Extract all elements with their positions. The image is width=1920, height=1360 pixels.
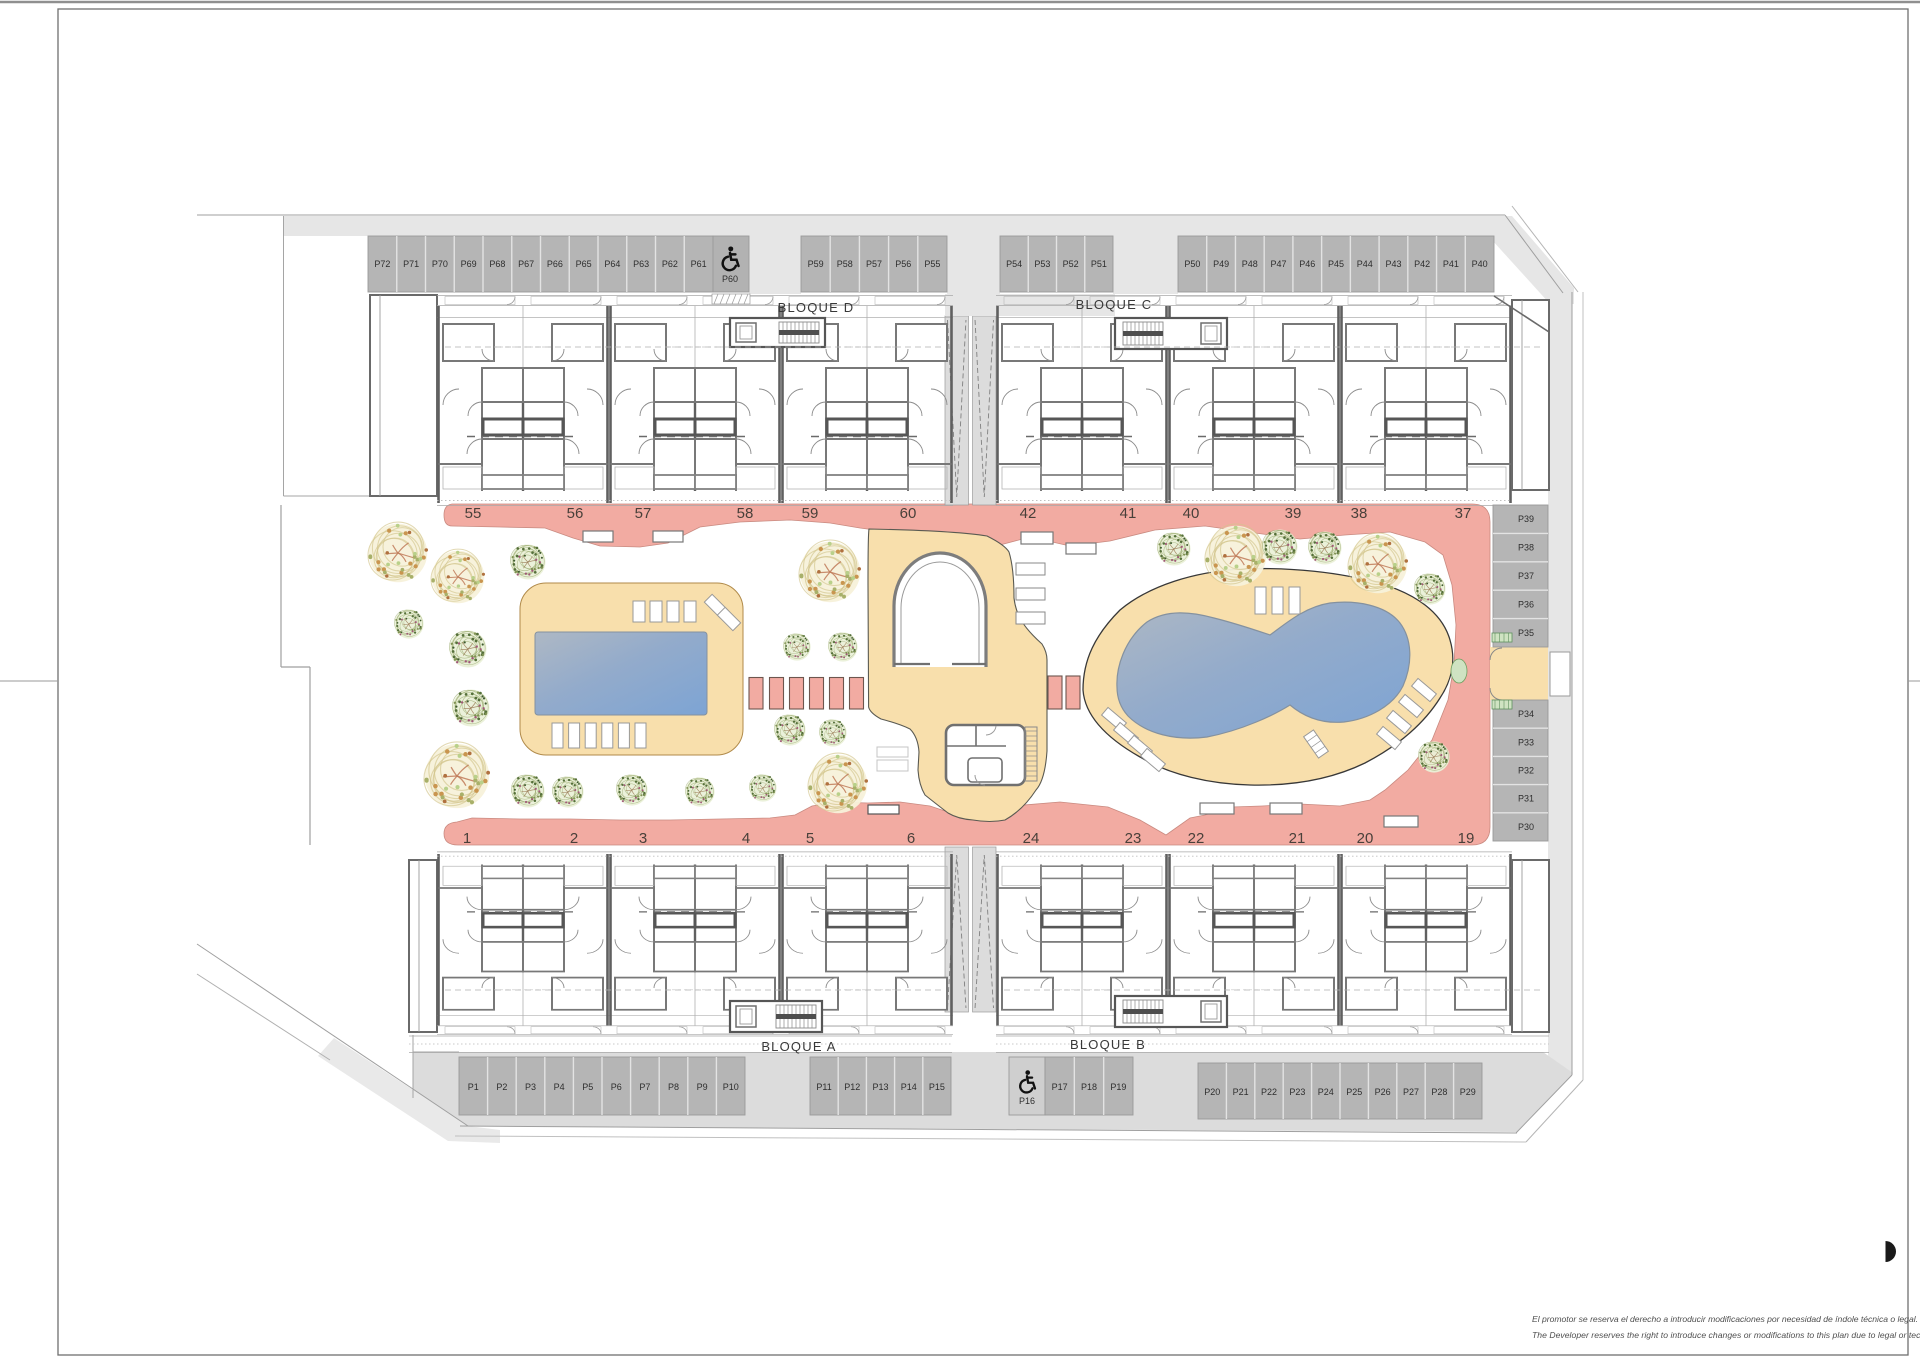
svg-text:P67: P67 <box>518 259 534 269</box>
svg-text:P3: P3 <box>525 1082 536 1092</box>
svg-text:P17: P17 <box>1052 1082 1068 1092</box>
svg-text:BLOQUE C: BLOQUE C <box>1076 297 1153 312</box>
svg-text:P27: P27 <box>1403 1087 1419 1097</box>
svg-text:P38: P38 <box>1518 543 1534 553</box>
svg-text:24: 24 <box>1023 830 1040 847</box>
svg-text:El promotor se reserva el dere: El promotor se reserva el derecho a intr… <box>1532 1314 1918 1324</box>
svg-text:P13: P13 <box>872 1082 888 1092</box>
svg-text:55: 55 <box>465 505 482 522</box>
svg-text:P50: P50 <box>1184 259 1200 269</box>
svg-text:P21: P21 <box>1233 1087 1249 1097</box>
svg-text:P49: P49 <box>1213 259 1229 269</box>
svg-text:P34: P34 <box>1518 709 1534 719</box>
svg-text:P70: P70 <box>432 259 448 269</box>
svg-text:P16: P16 <box>1019 1096 1035 1106</box>
svg-text:21: 21 <box>1289 830 1306 847</box>
svg-text:P31: P31 <box>1518 794 1534 804</box>
svg-text:38: 38 <box>1351 505 1368 522</box>
svg-text:P65: P65 <box>576 259 592 269</box>
svg-text:58: 58 <box>737 505 754 522</box>
svg-text:P63: P63 <box>633 259 649 269</box>
svg-text:P60: P60 <box>722 274 738 284</box>
svg-text:P35: P35 <box>1518 628 1534 638</box>
svg-text:P48: P48 <box>1242 259 1258 269</box>
svg-text:BLOQUE D: BLOQUE D <box>778 300 855 315</box>
svg-text:P28: P28 <box>1431 1087 1447 1097</box>
svg-text:P2: P2 <box>496 1082 507 1092</box>
svg-text:P58: P58 <box>837 259 853 269</box>
svg-text:42: 42 <box>1020 505 1037 522</box>
svg-text:P44: P44 <box>1357 259 1373 269</box>
svg-text:2: 2 <box>570 830 578 847</box>
svg-text:60: 60 <box>900 505 917 522</box>
svg-text:P6: P6 <box>611 1082 622 1092</box>
svg-text:P22: P22 <box>1261 1087 1277 1097</box>
svg-text:59: 59 <box>802 505 819 522</box>
svg-text:BLOQUE B: BLOQUE B <box>1070 1037 1146 1052</box>
svg-text:P71: P71 <box>403 259 419 269</box>
svg-text:P9: P9 <box>697 1082 708 1092</box>
svg-text:The Developer reserves the rig: The Developer reserves the right to intr… <box>1532 1330 1920 1340</box>
svg-text:P8: P8 <box>668 1082 679 1092</box>
svg-text:P26: P26 <box>1375 1087 1391 1097</box>
svg-text:P39: P39 <box>1518 514 1534 524</box>
svg-text:P36: P36 <box>1518 599 1534 609</box>
svg-text:39: 39 <box>1285 505 1302 522</box>
svg-text:P23: P23 <box>1289 1087 1305 1097</box>
svg-text:P33: P33 <box>1518 737 1534 747</box>
svg-text:P19: P19 <box>1110 1082 1126 1092</box>
svg-text:P37: P37 <box>1518 571 1534 581</box>
svg-text:40: 40 <box>1183 505 1200 522</box>
svg-text:3: 3 <box>639 830 647 847</box>
svg-text:37: 37 <box>1455 505 1472 522</box>
svg-text:P42: P42 <box>1414 259 1430 269</box>
svg-text:P12: P12 <box>844 1082 860 1092</box>
svg-text:P45: P45 <box>1328 259 1344 269</box>
svg-text:57: 57 <box>635 505 652 522</box>
svg-text:P72: P72 <box>374 259 390 269</box>
svg-text:P66: P66 <box>547 259 563 269</box>
svg-text:P54: P54 <box>1006 259 1022 269</box>
svg-text:P11: P11 <box>816 1082 831 1092</box>
svg-text:P55: P55 <box>924 259 940 269</box>
svg-text:1: 1 <box>463 830 471 847</box>
svg-text:P53: P53 <box>1034 259 1050 269</box>
svg-text:P69: P69 <box>461 259 477 269</box>
svg-text:P24: P24 <box>1318 1087 1334 1097</box>
svg-text:P46: P46 <box>1299 259 1315 269</box>
svg-text:P59: P59 <box>808 259 824 269</box>
svg-text:P15: P15 <box>929 1082 945 1092</box>
svg-text:P43: P43 <box>1385 259 1401 269</box>
svg-text:P41: P41 <box>1443 259 1459 269</box>
svg-text:5: 5 <box>806 830 814 847</box>
svg-text:P47: P47 <box>1271 259 1287 269</box>
svg-text:P51: P51 <box>1091 259 1107 269</box>
svg-text:6: 6 <box>907 830 915 847</box>
svg-text:P40: P40 <box>1472 259 1488 269</box>
svg-text:BLOQUE A: BLOQUE A <box>761 1039 836 1054</box>
svg-text:P25: P25 <box>1346 1087 1362 1097</box>
svg-text:P64: P64 <box>604 259 620 269</box>
svg-text:22: 22 <box>1188 830 1205 847</box>
svg-text:P57: P57 <box>866 259 882 269</box>
svg-text:P20: P20 <box>1204 1087 1220 1097</box>
svg-text:P61: P61 <box>691 259 707 269</box>
svg-text:P10: P10 <box>723 1082 739 1092</box>
svg-text:20: 20 <box>1357 830 1374 847</box>
svg-text:P1: P1 <box>468 1082 479 1092</box>
svg-text:19: 19 <box>1458 830 1475 847</box>
svg-text:P7: P7 <box>639 1082 650 1092</box>
svg-text:23: 23 <box>1125 830 1142 847</box>
svg-text:P18: P18 <box>1081 1082 1097 1092</box>
svg-text:4: 4 <box>742 830 750 847</box>
svg-text:P52: P52 <box>1063 259 1079 269</box>
svg-text:P62: P62 <box>662 259 678 269</box>
svg-text:P14: P14 <box>901 1082 917 1092</box>
svg-text:P56: P56 <box>895 259 911 269</box>
svg-text:P30: P30 <box>1518 822 1534 832</box>
svg-text:P68: P68 <box>489 259 505 269</box>
svg-text:P4: P4 <box>554 1082 565 1092</box>
svg-text:56: 56 <box>567 505 584 522</box>
svg-text:P32: P32 <box>1518 766 1534 776</box>
svg-text:P29: P29 <box>1460 1087 1476 1097</box>
svg-text:P5: P5 <box>582 1082 593 1092</box>
svg-text:41: 41 <box>1120 505 1137 522</box>
